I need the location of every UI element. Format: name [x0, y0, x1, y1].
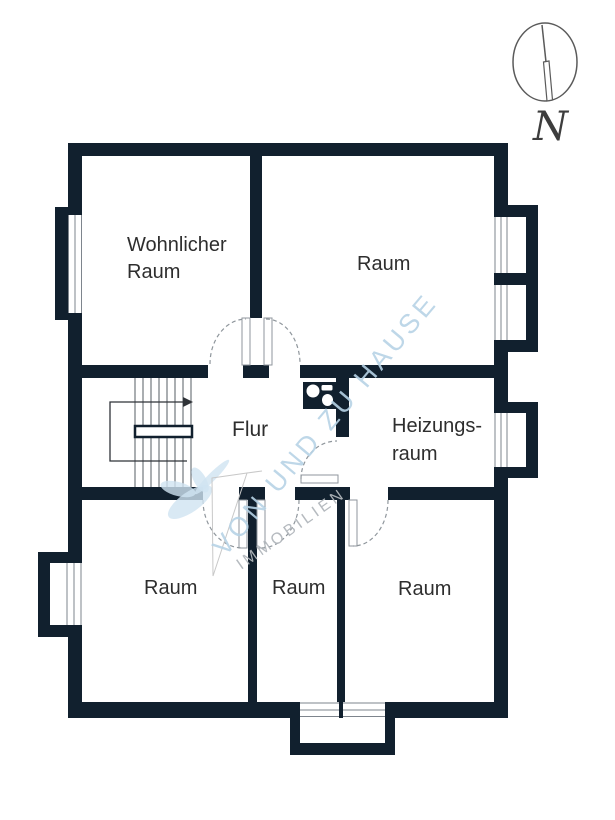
door-swing-arc — [210, 319, 246, 364]
wall-top-partition — [250, 156, 262, 318]
compass-north-icon: N — [513, 23, 577, 150]
window-bottom-bay — [290, 702, 395, 755]
room-label-flur: Flur — [232, 418, 268, 441]
door-leaf — [301, 475, 338, 483]
staircase — [110, 378, 193, 487]
wall-mid-lower-right — [388, 487, 494, 500]
door-raum-top-right — [264, 318, 300, 365]
floorplan-page: VON UND ZU HAUSE IMMOBILIEN Wohnlicher R… — [0, 0, 615, 820]
window-sill-block — [55, 207, 68, 320]
wall-mid-upper-stub — [243, 365, 269, 378]
wall-mid-upper-right — [300, 365, 494, 378]
wall-mid-upper-left — [82, 365, 208, 378]
window-heizung-bay — [494, 402, 538, 478]
wall-bottom-partition-right — [337, 500, 345, 702]
stair-landing-bar — [135, 426, 192, 437]
room-label-raum-top-right: Raum — [357, 253, 410, 275]
door-leaf — [242, 318, 250, 365]
room-label-heizungsraum-line1: Heizungs- — [392, 415, 482, 437]
window-bottom-left-bay — [38, 552, 82, 637]
wall-top — [68, 143, 508, 156]
door-wohnlicher-raum — [210, 318, 250, 365]
door-raum-bottom-right — [349, 500, 388, 546]
watermark-swoosh-icon — [159, 457, 232, 525]
wall-bottom — [68, 702, 508, 718]
room-label-raum-bottom-right: Raum — [398, 578, 451, 600]
room-label-wohnlicher-raum-line2: Raum — [127, 261, 180, 283]
room-label-wohnlicher-raum-line1: Wohnlicher — [127, 234, 227, 256]
floorplan-canvas: VON UND ZU HAUSE IMMOBILIEN Wohnlicher R… — [0, 0, 615, 820]
compass-needle — [544, 61, 553, 101]
room-label-heizungsraum-line2: raum — [392, 443, 438, 465]
door-leaf — [264, 318, 272, 365]
partition-through-window — [339, 702, 343, 718]
room-labels: Wohnlicher Raum Raum Flur Heizungs- raum… — [127, 234, 482, 600]
door-leaf — [349, 500, 357, 546]
door-swing-arc — [353, 500, 388, 546]
windows-top-right-bay — [494, 205, 538, 352]
room-label-raum-bottom-left: Raum — [144, 577, 197, 599]
compass-north-label: N — [532, 104, 570, 150]
room-label-raum-bottom-middle: Raum — [272, 577, 325, 599]
window-top-left — [55, 207, 82, 320]
